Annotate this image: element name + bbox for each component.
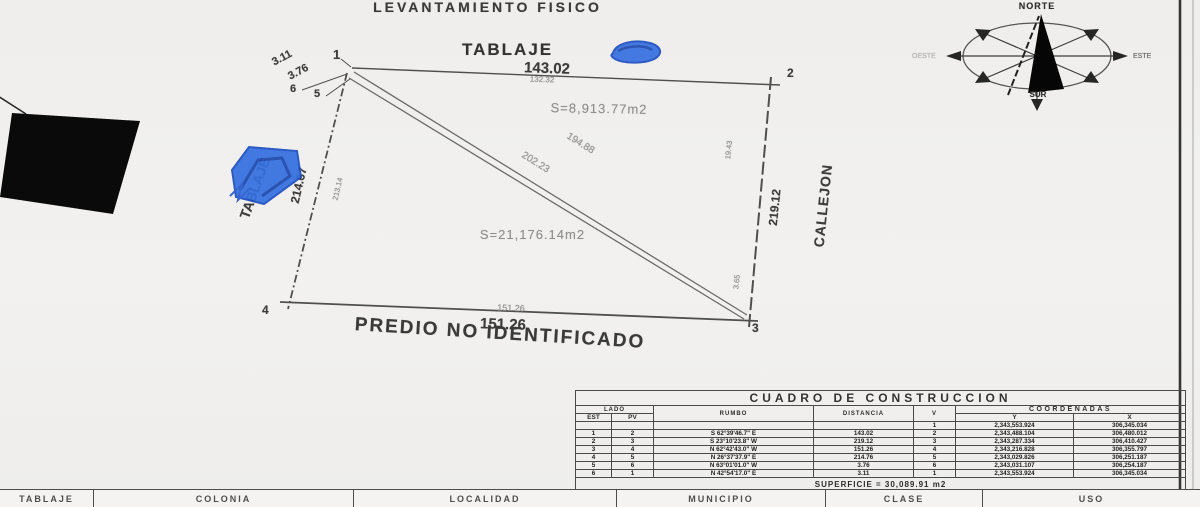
marker-scribble-top-icon: [611, 41, 660, 62]
survey-sheet: LEVANTAMIENTO FISICO TABLAJE 1 2 3 4 5 6…: [0, 0, 1200, 507]
marker-scribble-left-icon: [230, 147, 301, 204]
marker-scribbles: [0, 0, 1200, 507]
